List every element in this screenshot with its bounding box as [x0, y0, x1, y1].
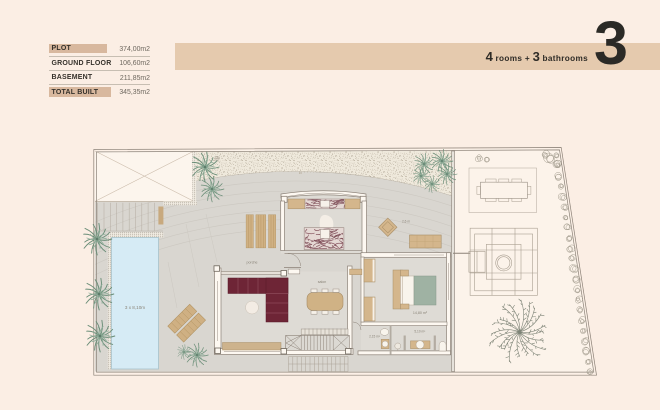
svg-text:c/ · · · · · ·: c/ · · · · · · [299, 171, 321, 175]
svg-text:2,6 m: 2,6 m [402, 220, 410, 224]
svg-text:2,15 m²: 2,15 m² [369, 335, 380, 339]
svg-text:salon: salon [318, 280, 327, 284]
svg-text:14,80 m²: 14,80 m² [413, 311, 428, 315]
svg-text:porche: porche [247, 261, 258, 265]
svg-text:5,10 m²: 5,10 m² [414, 330, 425, 334]
svg-text:3 x 8,10m: 3 x 8,10m [125, 305, 145, 310]
